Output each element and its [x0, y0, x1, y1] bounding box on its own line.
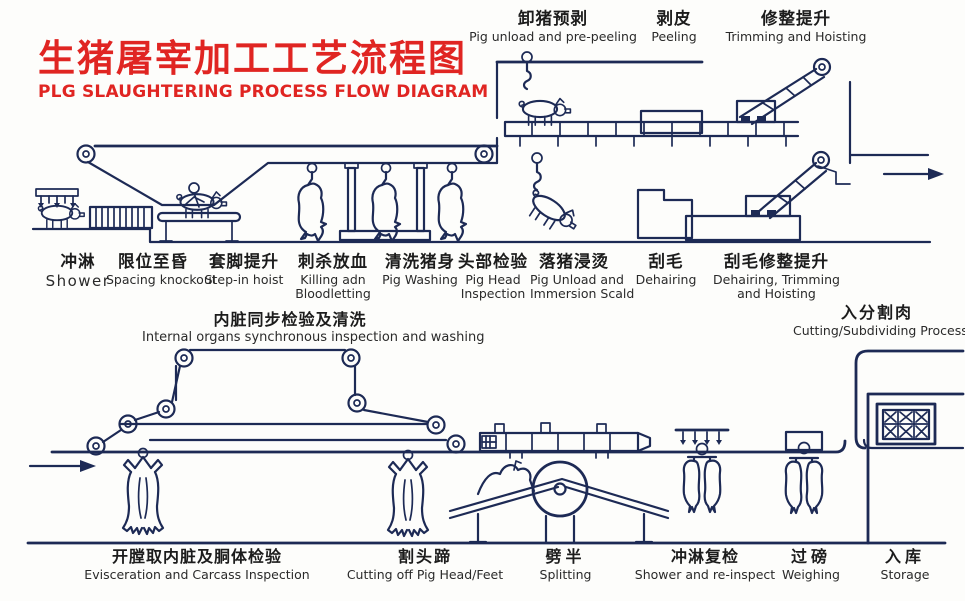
- stage-en: Weighing: [772, 568, 850, 582]
- stage-label-storage: 入库 Storage: [864, 548, 946, 582]
- stage-en: Evisceration and Carcass Inspection: [72, 568, 322, 582]
- stage-en: Shower: [42, 273, 114, 290]
- stage-zh: 套脚提升: [196, 253, 292, 271]
- stage-label-shower-reinspect: 冲淋复检 Shower and re-inspect: [634, 548, 776, 582]
- hanging-carcass-evisceration: [123, 449, 163, 535]
- stage-label-evisceration: 开膛取内脏及胴体检验 Evisceration and Carcass Insp…: [72, 548, 322, 582]
- stage-label-shower: 冲淋 Shower: [42, 253, 114, 290]
- weighing-scale: [786, 432, 823, 513]
- stage-en: Pig Unload and: [530, 273, 618, 287]
- stage-zh: 剥皮: [630, 10, 718, 28]
- stage-en: Cutting off Pig Head/Feet: [344, 568, 506, 582]
- process-flow-poster: 生猪屠宰加工工艺流程图 PLG SLAUGHTERING PROCESS FLO…: [0, 0, 965, 601]
- stage-en: Cutting/Subdividing Process: [793, 324, 961, 338]
- stage-en: Pig Washing: [374, 273, 466, 287]
- organ-inspection-conveyor: [88, 350, 465, 455]
- subdividing-drop-rail: [856, 351, 963, 448]
- stage-en: Pig Head: [456, 273, 530, 287]
- stage-label-organ-inspection: 内脏同步检验及清洗 Internal organs synchronous in…: [142, 311, 438, 345]
- pig-falling-to-scald: [521, 187, 581, 240]
- reinspect-sprinkler: [676, 430, 728, 512]
- poster-title: 生猪屠宰加工工艺流程图 PLG SLAUGHTERING PROCESS FLO…: [38, 40, 488, 102]
- lower-entry-arrow: [30, 460, 96, 472]
- stage-label-pig-washing: 清洗猪身 Pig Washing: [374, 253, 466, 287]
- stage-zh: 清洗猪身: [374, 253, 466, 271]
- upper-exit-rail: [850, 82, 944, 180]
- splitting-saw: [450, 461, 668, 542]
- stage-label-pig-unload-pre-peeling: 卸猪预剥 Pig unload and pre-peeling: [468, 10, 638, 44]
- dehair-hoist-conveyor: [746, 152, 850, 218]
- stage-label-cut-head-feet: 割头蹄 Cutting off Pig Head/Feet: [344, 548, 506, 582]
- washing-cabinet: [340, 163, 430, 241]
- stage-zh: 修整提升: [716, 10, 876, 28]
- stage-en: Splitting: [518, 568, 613, 582]
- pig-under-shower: [38, 204, 84, 228]
- stage-en: Shower and re-inspect: [634, 568, 776, 582]
- stage-label-immersion-scald: 落猪浸烫 Pig Unload and Immersion Scald: [530, 253, 618, 301]
- stage-en: Dehairing, Trimming: [704, 273, 849, 287]
- stage-zh: 入库: [864, 548, 946, 566]
- stage-zh: 内脏同步检验及清洗: [142, 311, 438, 329]
- stage-zh: 开膛取内脏及胴体检验: [72, 548, 322, 566]
- stage-zh: 头部检验: [456, 253, 530, 271]
- stage-en: Trimming and Hoisting: [716, 30, 876, 44]
- stage-label-splitting: 劈半 Splitting: [518, 548, 613, 582]
- stage-label-dehair-trim-hoist: 刮毛修整提升 Dehairing, Trimming and Hoisting: [704, 253, 849, 301]
- title-english: PLG SLAUGHTERING PROCESS FLOW DIAGRAM: [38, 82, 488, 102]
- stage-label-dehairing: 刮毛 Dehairing: [626, 253, 706, 287]
- stage-en2: Inspection: [456, 287, 530, 301]
- stage-en: Killing adn: [294, 273, 372, 287]
- stage-zh: 过磅: [772, 548, 850, 566]
- stage-zh: 冲淋: [42, 253, 114, 271]
- scalding-tank: [638, 190, 692, 238]
- stage-en: Peeling: [630, 30, 718, 44]
- step-in-hoist-conveyor: [158, 183, 240, 241]
- stage-label-subdividing: 入分割肉 Cutting/Subdividing Process: [793, 304, 961, 338]
- stage-label-spacing-knockout: 限位至昏 Spacing knockout: [106, 253, 200, 287]
- stage-en2: and Hoisting: [704, 287, 849, 301]
- stage-en: Step-in hoist: [196, 273, 292, 287]
- stage-zh: 落猪浸烫: [530, 253, 618, 271]
- stage-label-head-inspection: 头部检验 Pig Head Inspection: [456, 253, 530, 301]
- hanging-carcass-head-feet: [388, 451, 428, 537]
- stage-label-killing-bloodletting: 刺杀放血 Killing adn Bloodletting: [294, 253, 372, 301]
- storage-room: [864, 394, 963, 543]
- hanging-pig-head-inspection: [438, 164, 466, 242]
- stage-label-weighing: 过磅 Weighing: [772, 548, 850, 582]
- stage-zh: 劈半: [518, 548, 613, 566]
- stage-zh: 冲淋复检: [634, 548, 776, 566]
- stage-label-peeling: 剥皮 Peeling: [630, 10, 718, 44]
- stage-en: Spacing knockout: [106, 273, 200, 287]
- stage-zh: 割头蹄: [344, 548, 506, 566]
- stage-zh: 刺杀放血: [294, 253, 372, 271]
- stage-zh: 刮毛修整提升: [704, 253, 849, 271]
- hanging-pig-bloodletting: [298, 164, 326, 242]
- stage-zh: 刮毛: [626, 253, 706, 271]
- stunning-pen: [90, 207, 152, 228]
- dehairing-machine: [686, 216, 800, 240]
- stage-en: Pig unload and pre-peeling: [468, 30, 638, 44]
- stage-en: Dehairing: [626, 273, 706, 287]
- trimming-hoist-conveyor: [737, 59, 830, 124]
- title-chinese: 生猪屠宰加工工艺流程图: [38, 40, 488, 79]
- stage-zh: 入分割肉: [793, 304, 961, 322]
- stage-label-step-in-hoist: 套脚提升 Step-in hoist: [196, 253, 292, 287]
- stage-en2: Immersion Scald: [530, 287, 618, 301]
- stage-zh: 限位至昏: [106, 253, 200, 271]
- stage-zh: 卸猪预剥: [468, 10, 638, 28]
- stage-en: Storage: [864, 568, 946, 582]
- stage-label-trimming-hoisting: 修整提升 Trimming and Hoisting: [716, 10, 876, 44]
- stage-en: Internal organs synchronous inspection a…: [142, 331, 438, 346]
- stage-en2: Bloodletting: [294, 287, 372, 301]
